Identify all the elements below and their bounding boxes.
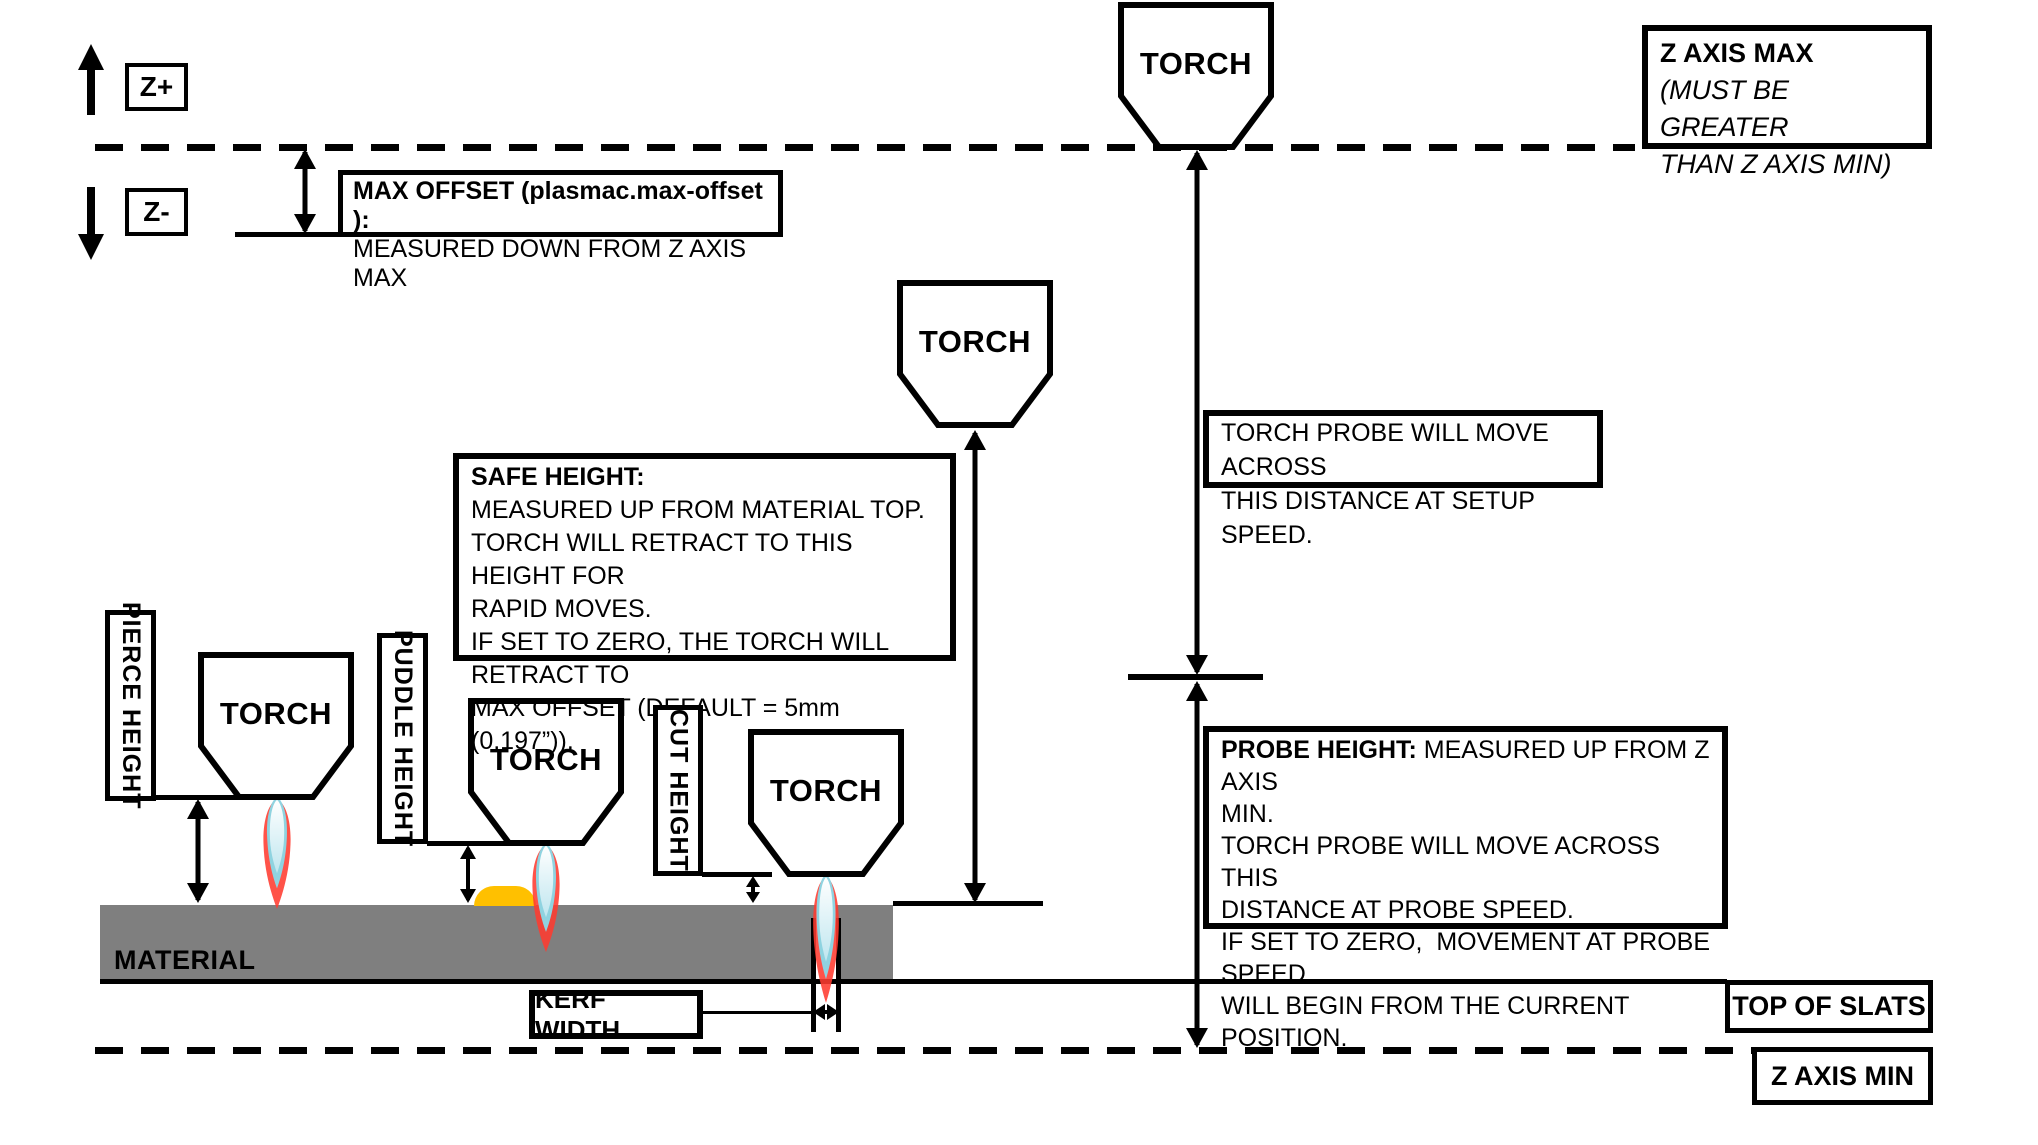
safe-height-arrow (961, 430, 989, 903)
torch-probe-line1: TORCH PROBE WILL MOVE ACROSS (1221, 419, 1549, 481)
torch-probe-line2: THIS DISTANCE AT SETUP SPEED. (1221, 487, 1535, 549)
torch-at-safe-height: TORCH (897, 280, 1053, 428)
cut-height-label: CUT HEIGHT (664, 709, 693, 872)
z-axis-max-line (95, 144, 1635, 151)
torch-label: TORCH (198, 696, 354, 732)
top-of-slats-label: TOP OF SLATS (1732, 991, 1926, 1022)
puddle-height-label: PUDDLE HEIGHT (388, 630, 417, 847)
probe-height-title: PROBE HEIGHT: (1221, 736, 1417, 764)
max-offset-title: MAX OFFSET (plasmac.max-offset ): (353, 177, 763, 234)
max-offset-line2: MEASURED DOWN FROM Z AXIS MAX (353, 235, 746, 292)
probe-height-line5: IF SET TO ZERO, MOVEMENT AT PROBE SPEED (1221, 928, 1710, 988)
material-label: MATERIAL (114, 945, 255, 976)
pierce-flame-icon (259, 797, 295, 910)
z-axis-max-box: Z AXIS MAX (MUST BE GREATER THAN Z AXIS … (1642, 25, 1932, 149)
pierce-height-label: PIERCE HEIGHT (116, 602, 145, 809)
probe-height-line6: WILL BEGIN FROM THE CURRENT POSITION. (1221, 992, 1629, 1052)
z-minus-label-box: Z- (125, 188, 188, 236)
z-minus-arrow-icon (76, 184, 106, 260)
safe-height-line3: TORCH WILL RETRACT TO THIS HEIGHT FOR (471, 529, 853, 590)
kerf-width-label: KERF WIDTH (535, 984, 697, 1046)
z-plus-arrow-icon (76, 44, 106, 118)
pierce-height-arrow (184, 799, 212, 903)
z-axis-min-label: Z AXIS MIN (1771, 1061, 1914, 1092)
puddle-height-label-box: PUDDLE HEIGHT (377, 633, 428, 844)
puddle-height-arrow (454, 845, 482, 903)
cut-height-arrow (739, 876, 767, 903)
pierce-height-label-box: PIERCE HEIGHT (105, 610, 156, 801)
torch-at-z-max: TORCH (1118, 2, 1274, 150)
material: MATERIAL (100, 905, 893, 980)
safe-height-line2: MEASURED UP FROM MATERIAL TOP. (471, 496, 925, 524)
safe-height-box: SAFE HEIGHT: MEASURED UP FROM MATERIAL T… (453, 453, 956, 661)
probe-height-line2: MIN. (1221, 800, 1274, 828)
cut-flame-icon (809, 874, 843, 1004)
max-offset-box: MAX OFFSET (plasmac.max-offset ): MEASUR… (338, 170, 783, 237)
cut-height-label-box: CUT HEIGHT (653, 705, 703, 876)
molten-puddle (474, 886, 536, 906)
torch-at-pierce-height: TORCH (198, 652, 354, 800)
z-axis-max-note1: (MUST BE GREATER (1660, 72, 1914, 146)
safe-height-title: SAFE HEIGHT: (471, 463, 645, 491)
top-of-slats-box: TOP OF SLATS (1725, 980, 1933, 1033)
probe-height-line3: TORCH PROBE WILL MOVE ACROSS THIS (1221, 832, 1660, 892)
kerf-leader-line (703, 1011, 815, 1014)
z-axis-max-note2: THAN Z AXIS MIN) (1660, 146, 1914, 183)
kerf-width-box: KERF WIDTH (529, 990, 703, 1039)
torch-probe-box: TORCH PROBE WILL MOVE ACROSS THIS DISTAN… (1203, 410, 1603, 488)
z-axis-max-title: Z AXIS MAX (1660, 35, 1914, 72)
z-axis-min-box: Z AXIS MIN (1752, 1047, 1933, 1105)
torch-label: TORCH (897, 324, 1053, 360)
torch-label: TORCH (748, 773, 904, 809)
probe-height-box: PROBE HEIGHT: MEASURED UP FROM Z AXIS MI… (1203, 726, 1728, 929)
z-minus-label: Z- (143, 196, 169, 228)
plasmac-height-diagram: Z+ Z- MAX OFFSET (plasmac.max-offset ): … (0, 0, 2038, 1145)
max-offset-arrow (291, 149, 319, 234)
safe-height-line4: RAPID MOVES. (471, 595, 652, 623)
torch-label: TORCH (1118, 46, 1274, 82)
puddle-flame-icon (528, 843, 564, 953)
probe-height-line4: DISTANCE AT PROBE SPEED. (1221, 896, 1574, 924)
safe-height-line5: IF SET TO ZERO, THE TORCH WILL RETRACT T… (471, 628, 888, 689)
z-plus-label-box: Z+ (125, 63, 188, 111)
kerf-width-arrow (813, 1003, 839, 1021)
z-plus-label: Z+ (140, 71, 173, 103)
